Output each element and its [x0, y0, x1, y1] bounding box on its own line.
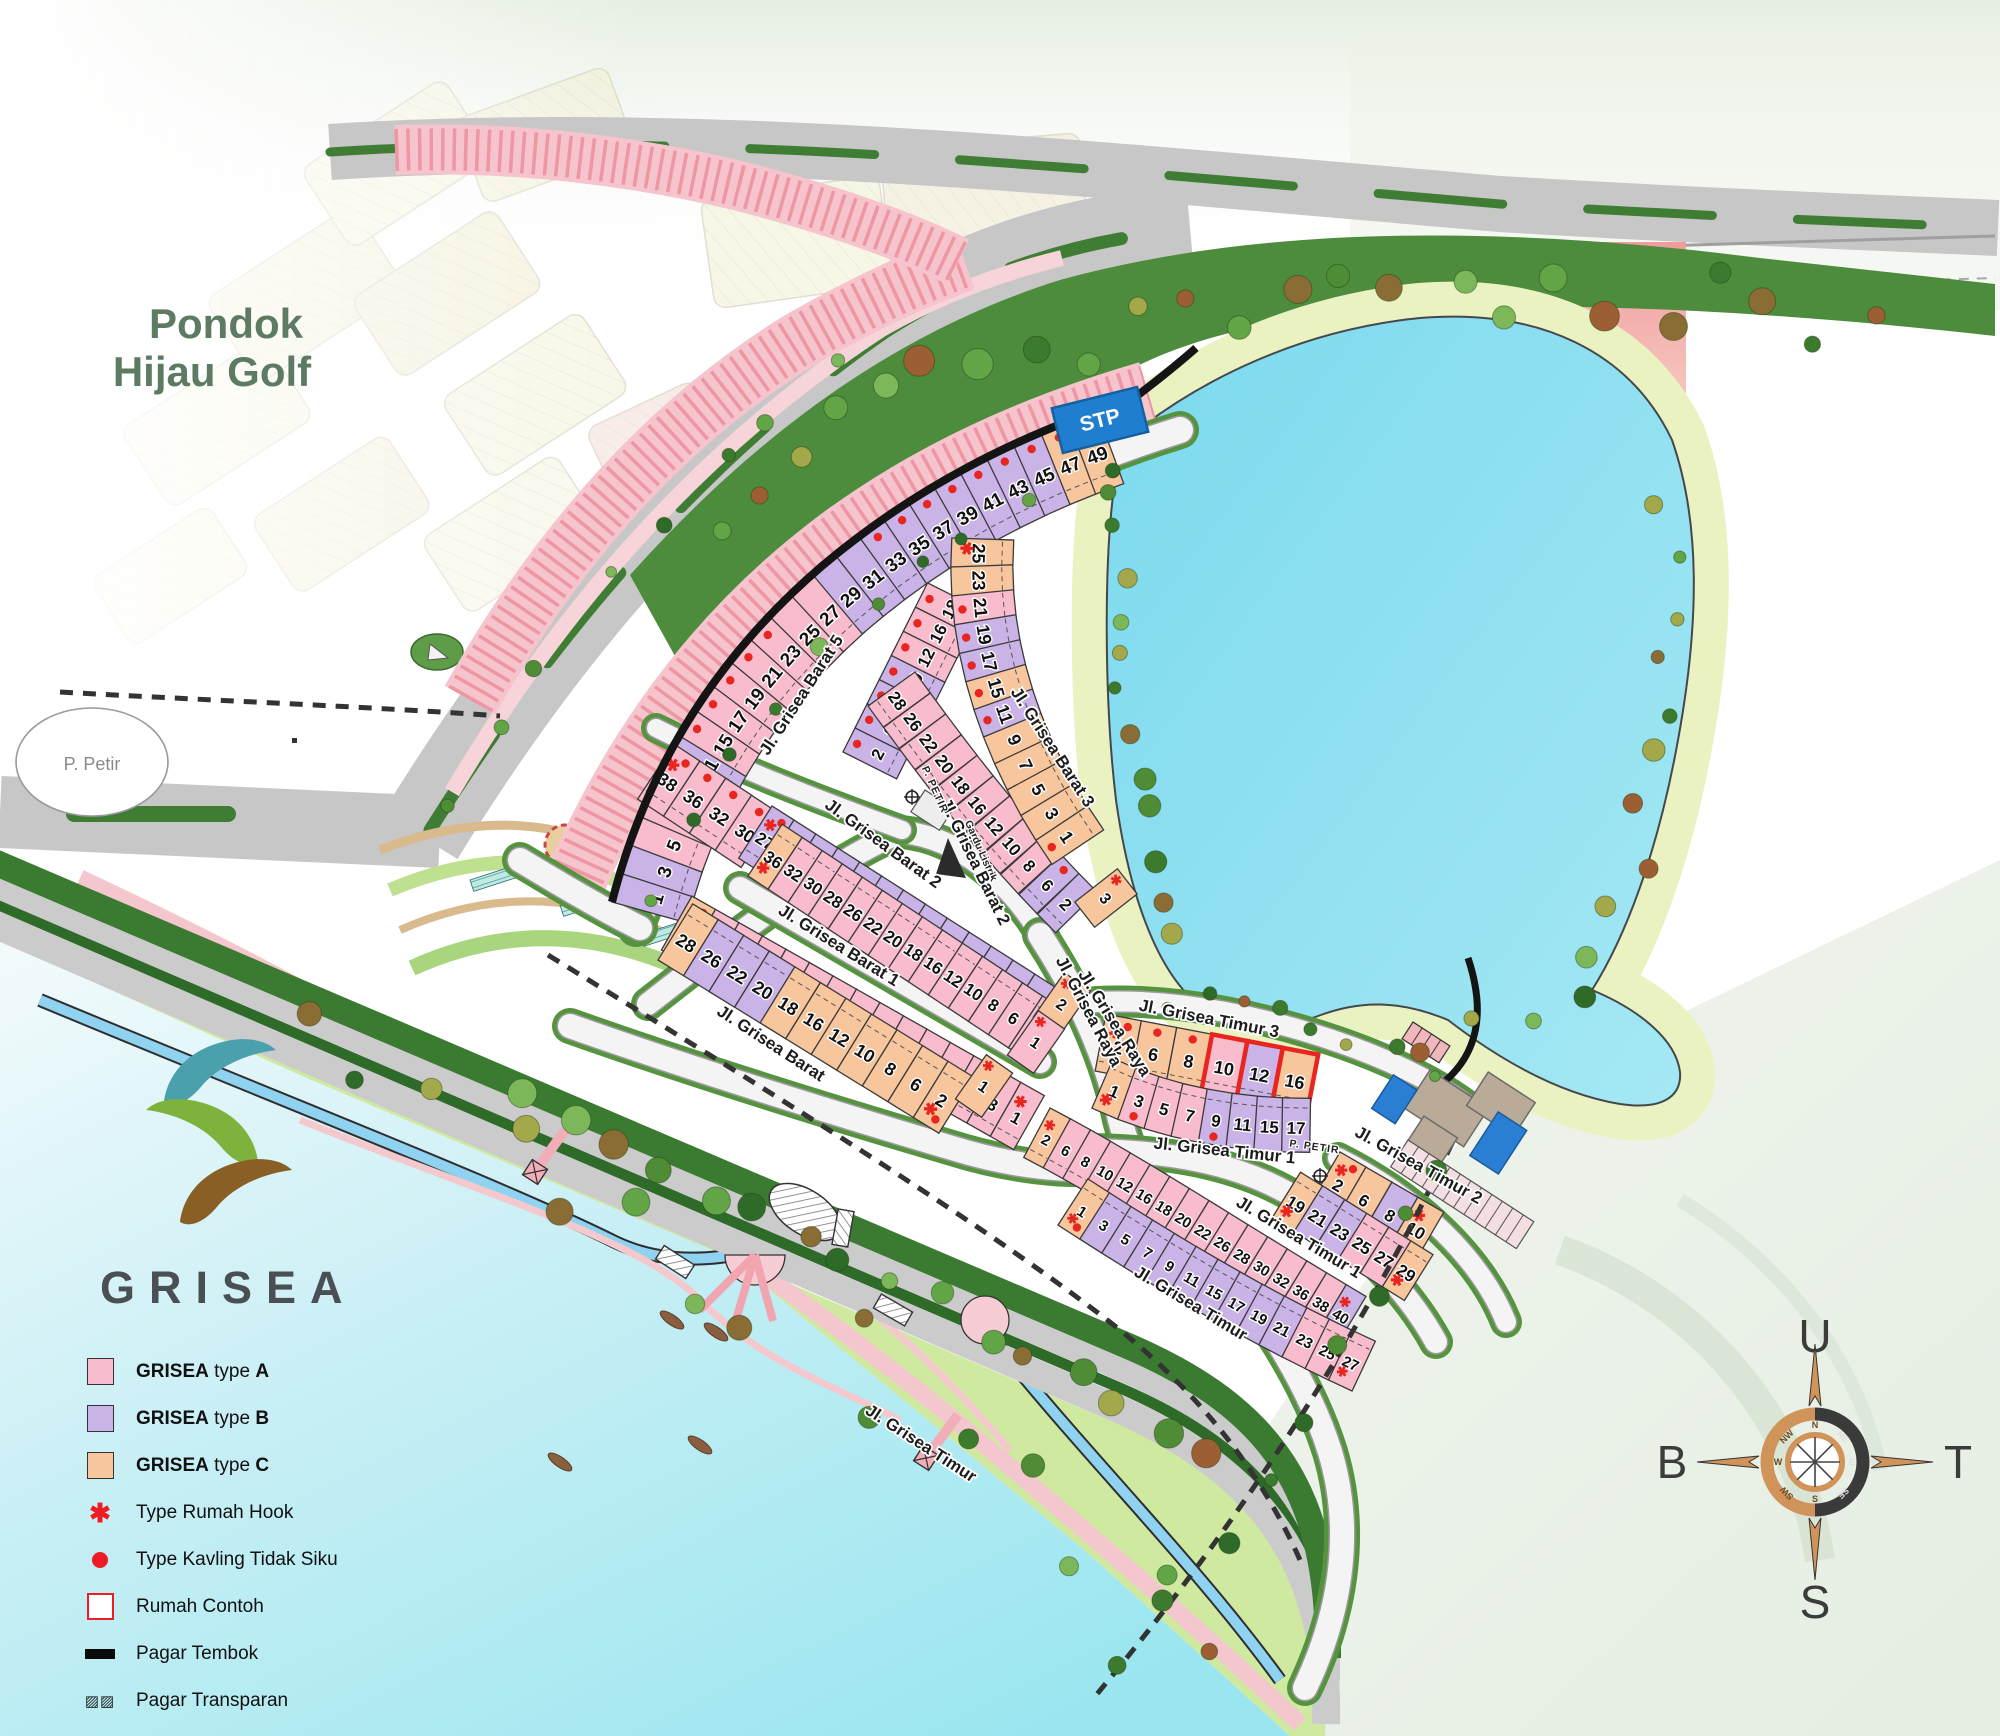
logo-swoosh-teal — [164, 1039, 276, 1104]
legend-label: Type Rumah Hook — [136, 1502, 293, 1524]
svg-text:16: 16 — [1283, 1070, 1306, 1093]
grisea-logo — [128, 1022, 308, 1247]
legend-label: Pagar Transparan — [136, 1690, 288, 1712]
svg-text:12: 12 — [1248, 1063, 1271, 1086]
svg-text:19: 19 — [972, 623, 995, 646]
legend-item-type-c: GRISEA type C — [78, 1442, 508, 1489]
svg-text:10: 10 — [1212, 1057, 1235, 1080]
legend-item-type-b: GRISEA type B — [78, 1395, 508, 1442]
compass-minor-E: E — [1849, 1457, 1855, 1467]
legend-item-rumah-hook: ✱ Type Rumah Hook — [78, 1489, 508, 1536]
compass-east: T — [1944, 1436, 1972, 1488]
compass-minor-W: W — [1774, 1457, 1783, 1467]
p-petir-label: P. PETIR — [1289, 1138, 1341, 1157]
legend-item-pagar-transparan: ▨▨ Pagar Transparan — [78, 1677, 508, 1724]
svg-text:23: 23 — [968, 570, 989, 591]
svg-text:17: 17 — [1286, 1119, 1305, 1138]
type-a-swatch — [87, 1358, 114, 1385]
red-outline-icon — [87, 1593, 114, 1620]
legend-label: Pagar Tembok — [136, 1643, 258, 1665]
pondok-label-line1: Pondok — [149, 300, 304, 347]
type-c-swatch — [87, 1452, 114, 1479]
legend-item-type-a: GRISEA type A — [78, 1348, 508, 1395]
logo-swoosh-green — [146, 1099, 258, 1164]
legend-item-pagar-tembok: Pagar Tembok — [78, 1630, 508, 1677]
svg-text:15: 15 — [1259, 1117, 1279, 1137]
wall-bar-icon — [85, 1649, 115, 1659]
compass-west: B — [1657, 1436, 1688, 1488]
legend-item-kavling-tidak-siku: Type Kavling Tidak Siku — [78, 1536, 508, 1583]
red-dot-icon — [92, 1552, 108, 1568]
legend-label: GRISEA type C — [136, 1455, 269, 1477]
pondok-label-line2: Hijau Golf — [113, 348, 312, 395]
legend-label: Type Kavling Tidak Siku — [136, 1549, 338, 1571]
type-b-swatch — [87, 1405, 114, 1432]
legend-label: GRISEA type A — [136, 1361, 269, 1383]
compass-minor-S: S — [1812, 1494, 1818, 1504]
site-plan-stage: 1357911151719212325272931333537394143454… — [0, 0, 2000, 1736]
legend: GRISEA type A GRISEA type B GRISEA type … — [78, 1348, 508, 1724]
svg-text:21: 21 — [969, 597, 991, 619]
transparent-fence-icon: ▨▨ — [85, 1692, 115, 1710]
legend-item-rumah-contoh: Rumah Contoh — [78, 1583, 508, 1630]
hook-asterisk-icon: ✱ — [89, 1500, 111, 1526]
legend-label: Rumah Contoh — [136, 1596, 264, 1618]
lot-timur3-s-15: 15 — [1254, 1096, 1285, 1152]
logo-swoosh-brown — [180, 1159, 292, 1224]
compass-south: S — [1800, 1576, 1831, 1628]
project-title: GRISEA — [100, 1262, 357, 1314]
svg-text:11: 11 — [1233, 1114, 1253, 1135]
legend-label: GRISEA type B — [136, 1408, 269, 1430]
p-petir-circle-label: P. Petir — [64, 754, 121, 774]
compass-minor-N: N — [1812, 1420, 1819, 1430]
